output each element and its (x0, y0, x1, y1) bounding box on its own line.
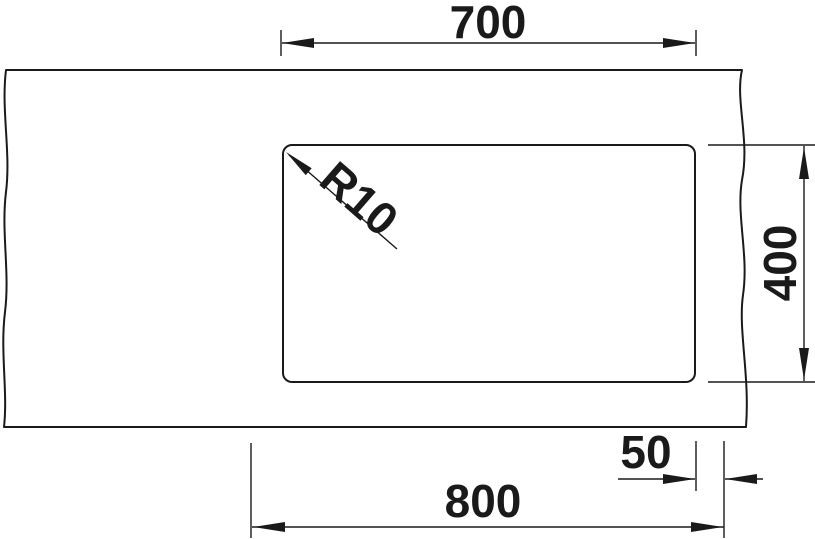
dim-label-50: 50 (620, 426, 671, 478)
arrow-left-icon (282, 38, 314, 48)
arrow-left-icon (253, 522, 285, 532)
arrow-down-icon (799, 348, 809, 380)
dim-basin-width: 700 (281, 0, 696, 56)
sink-installation-drawing: 700 400 50 800 (0, 0, 815, 539)
technical-drawing-page: 700 400 50 800 (0, 0, 815, 539)
dim-edge-distance: 50 (618, 426, 763, 538)
dim-label-800: 800 (445, 475, 522, 527)
dim-label-400: 400 (754, 225, 806, 302)
arrow-left-icon (725, 474, 757, 484)
arrow-right-icon (663, 38, 695, 48)
arrow-right-icon (691, 522, 723, 532)
dim-label-700: 700 (450, 0, 527, 48)
arrow-up-icon (799, 147, 809, 179)
